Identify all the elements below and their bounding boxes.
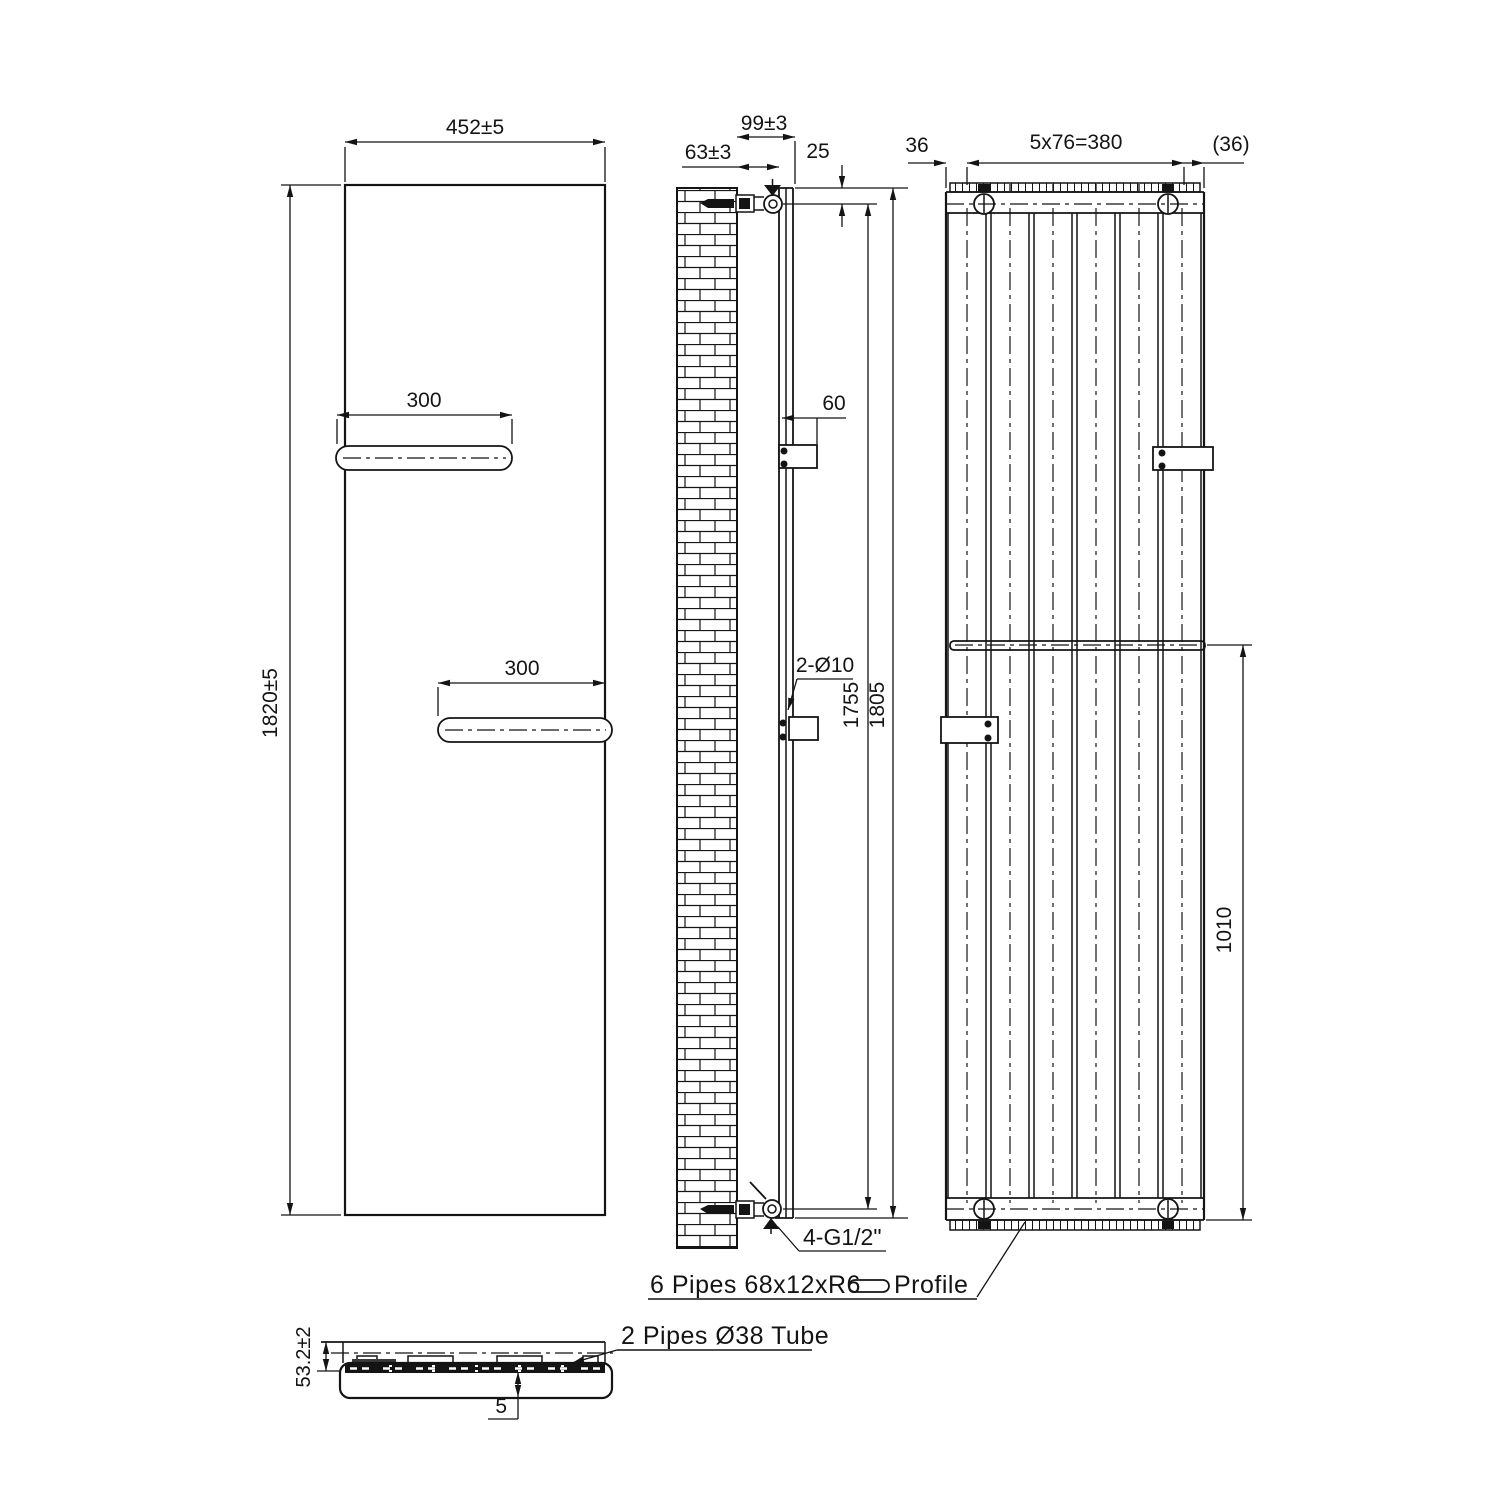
connections-label: 4-G1/2"	[803, 1224, 881, 1250]
drawing-canvas: 452±5 1820±5 300 300	[0, 0, 1500, 1500]
bolt	[978, 184, 990, 192]
notes: 6 Pipes 68x12xR6 Profile 2 Pipes Ø38 Tub…	[572, 1271, 977, 1363]
wall-to-back-dim: 63±3	[685, 141, 732, 164]
pipe-centerlines	[967, 208, 1182, 1203]
section-view: 53.2±2 5	[293, 1326, 613, 1419]
shelf-bottom-dim: 300	[504, 657, 539, 680]
side-view: 63±3 99±3 25 60 2-Ø10 1755 1805	[677, 112, 908, 1251]
front-width-dim: 452±5	[446, 116, 504, 139]
right-edge-dim: (36)	[1212, 133, 1249, 156]
profile-leader	[977, 1222, 1025, 1297]
tube-leader	[572, 1350, 617, 1363]
holes-label: 2-Ø10	[796, 654, 854, 677]
bracket-dim: 60	[822, 392, 845, 415]
overall-height-dim: 1805	[866, 682, 889, 729]
wall-bracket-middle	[789, 717, 818, 740]
top-offset-dim: 25	[806, 140, 829, 163]
left-edge-dim: 36	[905, 134, 928, 157]
front-view: 452±5 1820±5 300 300	[259, 116, 612, 1215]
front-panel-outline	[345, 185, 605, 1215]
bolt	[978, 1221, 990, 1229]
front-height-dim: 1820±5	[259, 668, 282, 738]
wall-to-front-dim: 99±3	[741, 112, 788, 135]
section-gap-dim: 5	[495, 1395, 507, 1418]
radiator-technical-drawing: 452±5 1820±5 300 300	[0, 0, 1500, 1500]
pipe-centers-dim: 1755	[840, 682, 863, 729]
shelf-to-bottom-dim: 1010	[1213, 907, 1236, 954]
drain-plug	[763, 1218, 780, 1229]
rear-view: 36 5x76=380 (36) 1010	[905, 131, 1252, 1297]
profile-note: 6 Pipes 68x12xR6	[650, 1271, 861, 1299]
wall-section	[677, 188, 737, 1248]
section-depth-dim: 53.2±2	[293, 1326, 315, 1387]
bolt	[1162, 184, 1174, 192]
bolt	[1162, 1221, 1174, 1229]
profile-note-suffix: Profile	[894, 1271, 968, 1299]
shelf-top-dim: 300	[406, 389, 441, 412]
tube-note: 2 Pipes Ø38 Tube	[621, 1322, 829, 1350]
pipe-pitch-dim: 5x76=380	[1030, 131, 1123, 154]
pipe-edges	[948, 213, 1201, 1198]
